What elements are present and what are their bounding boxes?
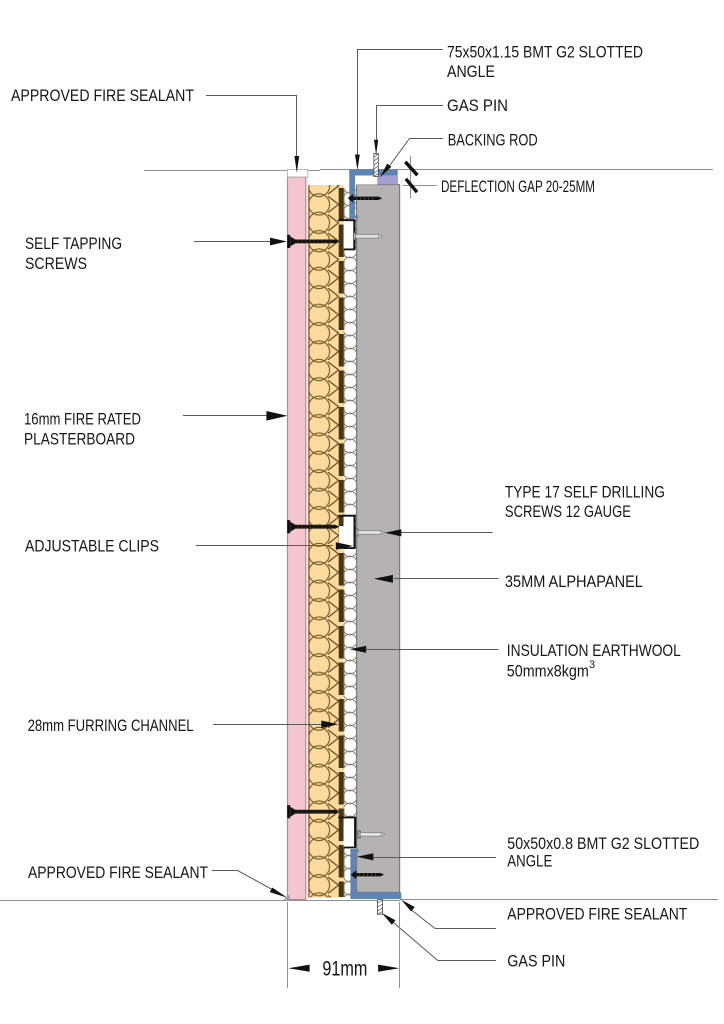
svg-text:TYPE 17 SELF DRILLING: TYPE 17 SELF DRILLING <box>505 483 665 502</box>
svg-text:APPROVED FIRE SEALANT: APPROVED FIRE SEALANT <box>28 863 208 882</box>
svg-text:INSULATION EARTHWOOL: INSULATION EARTHWOOL <box>507 641 681 660</box>
svg-text:PLASTERBOARD: PLASTERBOARD <box>24 430 135 449</box>
svg-text:APPROVED FIRE SEALANT: APPROVED FIRE SEALANT <box>11 86 194 105</box>
svg-text:APPROVED FIRE SEALANT: APPROVED FIRE SEALANT <box>507 905 687 924</box>
svg-text:SCREWS: SCREWS <box>25 254 87 273</box>
svg-text:16mm FIRE RATED: 16mm FIRE RATED <box>24 410 141 429</box>
svg-text:50mmx8kgm: 50mmx8kgm <box>507 662 589 681</box>
svg-text:ANGLE: ANGLE <box>447 62 495 81</box>
svg-text:50x50x0.8 BMT G2 SLOTTED: 50x50x0.8 BMT G2 SLOTTED <box>507 834 699 853</box>
svg-text:35MM ALPHAPANEL: 35MM ALPHAPANEL <box>505 572 643 591</box>
svg-text:GAS PIN: GAS PIN <box>447 96 508 115</box>
svg-text:75x50x1.15 BMT G2 SLOTTED: 75x50x1.15 BMT G2 SLOTTED <box>447 43 643 62</box>
svg-text:28mm FURRING CHANNEL: 28mm FURRING CHANNEL <box>28 716 194 735</box>
svg-text:SELF TAPPING: SELF TAPPING <box>25 234 122 253</box>
svg-text:3: 3 <box>589 659 595 671</box>
svg-text:ADJUSTABLE CLIPS: ADJUSTABLE CLIPS <box>25 537 159 556</box>
svg-text:BACKING ROD: BACKING ROD <box>448 131 538 150</box>
svg-text:91mm: 91mm <box>322 958 367 981</box>
svg-text:DEFLECTION GAP 20-25MM: DEFLECTION GAP 20-25MM <box>441 177 595 196</box>
svg-text:SCREWS 12 GAUGE: SCREWS 12 GAUGE <box>505 502 631 521</box>
svg-text:ANGLE: ANGLE <box>507 852 552 871</box>
svg-text:GAS PIN: GAS PIN <box>507 951 565 970</box>
